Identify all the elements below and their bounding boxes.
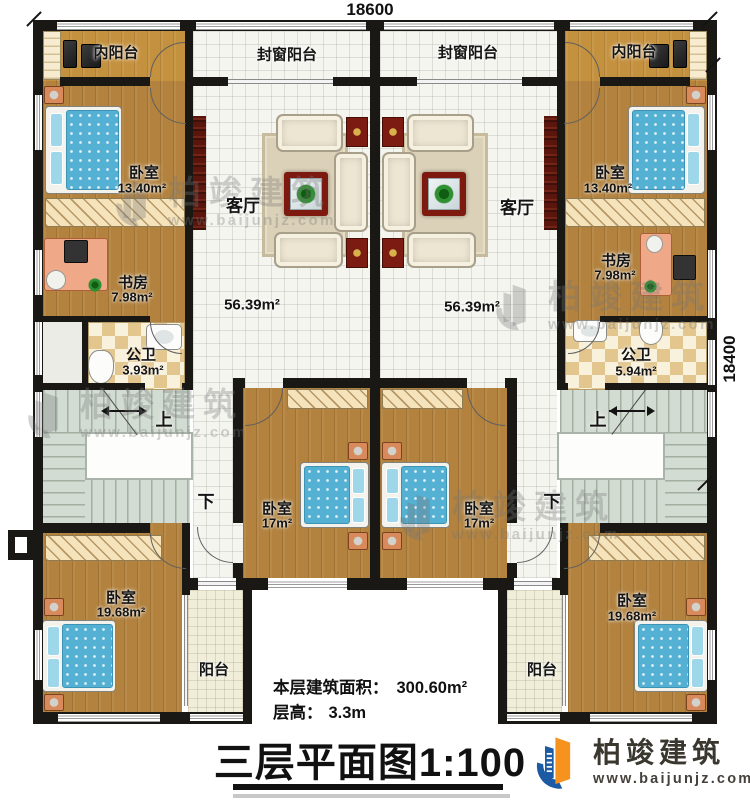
toilet-left xyxy=(88,350,114,384)
wardrobe-bedroom-bottom-left xyxy=(45,535,162,561)
wall-pier xyxy=(188,578,198,590)
chair-right xyxy=(646,235,663,253)
pillow xyxy=(50,113,63,147)
window-balcony-right xyxy=(562,595,566,706)
pillow xyxy=(50,151,63,185)
nightstand xyxy=(348,532,368,550)
plant-icon xyxy=(88,278,102,292)
nightstand xyxy=(686,86,706,104)
floor-area-value: 300.60m² xyxy=(397,679,468,697)
label-inner-balcony-left: 内阳台 xyxy=(93,42,138,63)
nightstand xyxy=(686,598,706,616)
brand-name: 柏竣建筑 xyxy=(593,738,750,767)
sofa-top-left xyxy=(276,114,343,152)
window xyxy=(708,340,715,385)
wall-pier xyxy=(193,77,228,86)
side-table xyxy=(382,117,404,147)
label-bedroom-top-right: 卧室 xyxy=(595,162,625,183)
balcony-railing xyxy=(190,714,243,721)
wall-pier xyxy=(380,77,417,86)
label-bedroom-top-left: 卧室 xyxy=(129,162,159,183)
bed-top-left xyxy=(45,106,122,194)
floor-height-value: 3.3m xyxy=(329,704,367,722)
wall-pier xyxy=(552,578,562,590)
tv-cabinet-right xyxy=(544,116,557,230)
pillow xyxy=(352,468,365,494)
side-table xyxy=(382,238,404,268)
wall-inner-balcony-right xyxy=(600,77,690,86)
closet-left xyxy=(43,31,61,80)
window xyxy=(590,714,692,722)
window xyxy=(708,392,715,437)
floor-area-line: 本层建筑面积：300.60m² xyxy=(273,674,467,698)
nightstand xyxy=(44,598,64,616)
watermark-name: 柏竣建筑 xyxy=(548,280,716,313)
nightstand xyxy=(44,86,64,104)
label-inner-balcony-right: 内阳台 xyxy=(611,41,656,62)
wall-bedroom-mid-top-left xyxy=(283,378,370,388)
label-living-left: 客厅 xyxy=(226,192,260,217)
plant-icon xyxy=(434,184,454,204)
window xyxy=(268,580,347,589)
label-stairs-down-left: 下 xyxy=(198,488,215,513)
window xyxy=(57,22,180,30)
wall-bedroom-bottom-top-left xyxy=(33,523,150,533)
pillow xyxy=(687,113,700,147)
watermark: 柏竣建筑 www.baijunjz.com xyxy=(492,280,716,333)
wall-study-bath-left xyxy=(43,316,150,322)
page-title: 三层平面图1:100 xyxy=(168,730,572,788)
sliding-door-balcony-left xyxy=(198,581,236,586)
wall-right-column-west xyxy=(557,20,565,390)
label-stairs-up-right: 上 xyxy=(590,406,607,431)
watermark-url: www.baijunjz.com xyxy=(548,316,716,333)
label-bedroom-top-right-area: 13.40m² xyxy=(584,181,632,196)
label-study-left-area: 7.98m² xyxy=(111,290,152,305)
label-balcony-left: 阳台 xyxy=(199,659,229,680)
label-living-left-area: 56.39m² xyxy=(224,297,280,314)
label-bedroom-bottom-right-area: 19.68m² xyxy=(608,609,656,624)
wall-bath-west-left xyxy=(82,322,88,390)
chair-left xyxy=(46,270,66,290)
label-bedroom-top-left-area: 13.40m² xyxy=(118,181,166,196)
window-balcony-left xyxy=(184,595,188,706)
window xyxy=(35,630,42,680)
wall-stairs-top-right xyxy=(605,383,717,390)
wall-pier xyxy=(505,578,514,590)
watermark: 柏竣建筑 www.baijunjz.com xyxy=(396,490,620,543)
brand-text: 柏竣建筑 www.baijunjz.com xyxy=(593,738,750,786)
duvet xyxy=(304,466,350,524)
label-bedroom-bottom-left-area: 19.68m² xyxy=(97,605,145,620)
wall-pier xyxy=(522,77,557,86)
arrow-right-icon xyxy=(647,406,660,416)
chaise-right xyxy=(382,152,416,232)
brand-logo-icon xyxy=(396,492,442,542)
nightstand xyxy=(348,442,368,460)
computer-monitor-icon xyxy=(673,255,696,280)
wall-pier xyxy=(333,77,370,86)
label-bath-left-area: 3.93m² xyxy=(122,363,163,378)
room-balcony-right-floor xyxy=(507,590,562,712)
bed-bottom-left xyxy=(42,620,116,692)
title-underline-shadow xyxy=(233,794,510,798)
duvet xyxy=(638,624,689,688)
brand-logo-icon xyxy=(24,390,70,440)
nightstand xyxy=(382,442,402,460)
label-living-right: 客厅 xyxy=(500,194,534,219)
room-balcony-left-floor xyxy=(188,590,243,712)
label-bedroom-bottom-right: 卧室 xyxy=(617,590,647,611)
wardrobe-bedroom-mid-left xyxy=(287,389,368,409)
bed-top-right xyxy=(628,106,705,194)
label-sealed-balcony-right: 封窗阳台 xyxy=(438,42,498,63)
label-study-right-area: 7.98m² xyxy=(594,268,635,283)
label-bedroom-mid-right-area: 17m² xyxy=(464,516,494,531)
brand-logo-icon xyxy=(532,734,584,791)
pillow xyxy=(687,151,700,185)
wall-balcony-west-right xyxy=(498,578,507,723)
stairs-right-lower-flight xyxy=(665,432,707,523)
stairs-left-lower-flight xyxy=(43,432,85,523)
wall-pier xyxy=(236,578,245,590)
pillow xyxy=(352,497,365,523)
nightstand xyxy=(44,694,64,711)
dimension-top: 18600 xyxy=(330,0,410,20)
watermark-text: 柏竣建筑 www.baijunjz.com xyxy=(548,280,716,333)
window xyxy=(570,22,693,30)
sliding-door-balcony-right xyxy=(514,581,552,586)
sliding-door-sealed-balcony-left xyxy=(228,79,333,84)
brand-logo: 柏竣建筑 www.baijunjz.com xyxy=(532,734,750,791)
closet-right xyxy=(689,31,707,80)
title-underline xyxy=(233,784,503,790)
sofa-bottom-left xyxy=(274,232,343,268)
side-table xyxy=(346,238,368,268)
appliance-right-1 xyxy=(673,40,687,68)
sliding-door-sealed-balcony-right xyxy=(417,79,522,84)
pillow xyxy=(691,626,704,656)
wardrobe-bedroom-top-right xyxy=(565,198,705,227)
nightstand xyxy=(686,694,706,711)
wall-south-center xyxy=(483,578,505,590)
duvet xyxy=(62,624,113,688)
label-stairs-up-left: 上 xyxy=(156,406,173,431)
window xyxy=(196,22,366,30)
wall-flue-bump xyxy=(8,530,34,560)
label-bedroom-mid-left-area: 17m² xyxy=(262,516,292,531)
window xyxy=(407,580,483,589)
window xyxy=(708,630,715,680)
balcony-railing xyxy=(507,714,560,721)
watermark: 柏竣建筑 www.baijunjz.com xyxy=(24,388,248,441)
label-bath-left: 公卫 xyxy=(126,344,156,365)
bed-bottom-right xyxy=(634,620,708,692)
computer-monitor-icon xyxy=(64,240,88,263)
chaise-left xyxy=(334,152,368,232)
stairs-landing-right xyxy=(557,432,665,480)
appliance-left-1 xyxy=(63,40,77,68)
wardrobe-bedroom-mid-right xyxy=(382,389,463,409)
label-balcony-right: 阳台 xyxy=(527,659,557,680)
wall-hall-bedroom-right xyxy=(507,563,517,578)
sofa-bottom-right xyxy=(407,232,476,268)
wall-south-center xyxy=(347,578,407,590)
pillow xyxy=(691,658,704,688)
label-stairs-down-right: 下 xyxy=(544,488,561,513)
wall-center-party xyxy=(370,20,380,590)
window xyxy=(384,22,554,30)
wall-stairs-top-right-pier xyxy=(560,383,568,390)
window xyxy=(35,95,42,150)
brand-website: www.baijunjz.com xyxy=(593,771,750,787)
wall-inner-balcony-left xyxy=(60,77,150,86)
label-bath-right-area: 5.94m² xyxy=(615,364,656,379)
wall-bedroom-mid-top-right xyxy=(380,378,467,388)
window xyxy=(35,250,42,295)
sofa-top-right xyxy=(407,114,474,152)
pillow xyxy=(47,658,60,688)
window xyxy=(35,322,42,375)
label-living-right-area: 56.39m² xyxy=(444,299,500,316)
side-table xyxy=(346,117,368,147)
pillow xyxy=(47,626,60,656)
duvet xyxy=(632,110,685,190)
wall-hall-bedroom-left xyxy=(233,563,243,578)
bed-mid-left xyxy=(300,462,369,528)
wall-balcony-east-left xyxy=(243,578,252,723)
dimension-right: 18400 xyxy=(720,314,738,404)
floor-plan-page: 柏竣建筑 www.baijunjz.com 柏竣建筑 www.baijunjz.… xyxy=(0,0,750,805)
label-sealed-balcony-left: 封窗阳台 xyxy=(257,44,317,65)
wall-south-center xyxy=(245,578,268,590)
label-bath-right: 公卫 xyxy=(621,344,651,365)
window xyxy=(58,714,160,722)
floor-height-label: 层高： xyxy=(273,704,323,722)
floor-area-label: 本层建筑面积： xyxy=(273,679,389,697)
floor-height-line: 层高：3.3m xyxy=(273,699,366,723)
window xyxy=(708,95,715,150)
